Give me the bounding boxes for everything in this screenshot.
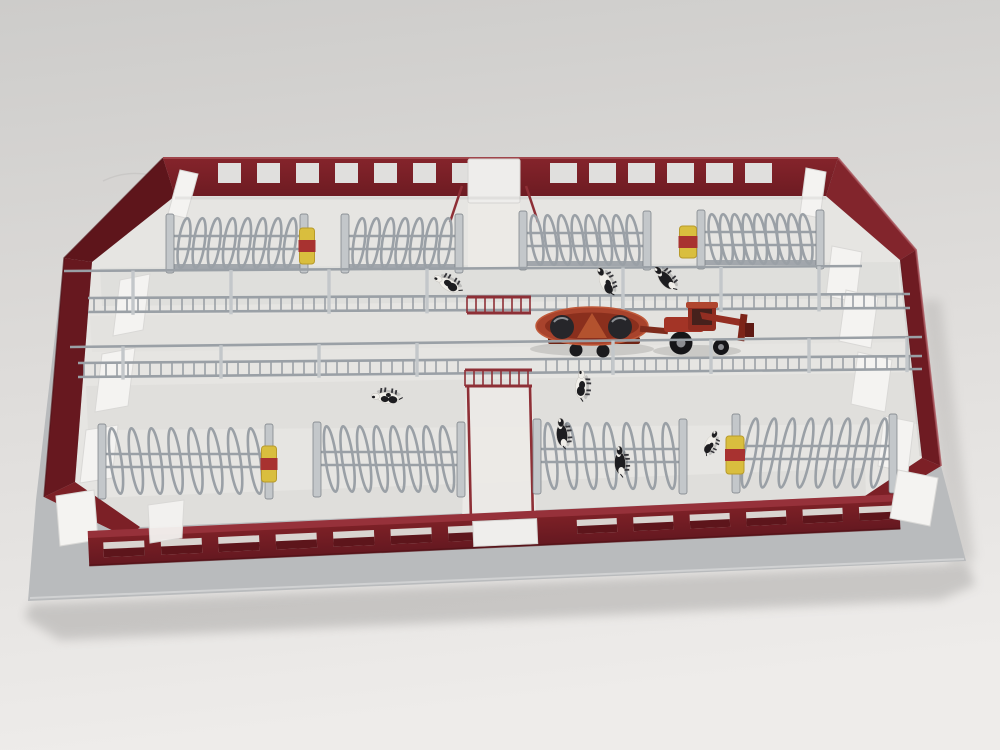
stall-end-post [519, 211, 527, 270]
wall-window [296, 163, 319, 183]
loader-implement [745, 323, 754, 337]
stall-end-post [697, 210, 705, 269]
white-panel [851, 352, 892, 412]
south-crossing-lane [462, 386, 536, 522]
cow-brush [261, 446, 278, 482]
north-doorway [468, 159, 520, 203]
brush-roller [299, 240, 316, 252]
cow-head [616, 446, 622, 455]
white-panel-corner [148, 500, 184, 543]
stall-end-post [679, 419, 687, 494]
wall-window [745, 163, 772, 183]
stall-end-post [166, 214, 174, 273]
wall-window [413, 163, 436, 183]
cow-brush [679, 226, 698, 258]
wall-window [706, 163, 733, 183]
stall-end-post [643, 211, 651, 270]
wall-window [628, 163, 655, 183]
stall-end-post [341, 214, 349, 273]
stall-end-post [98, 424, 106, 499]
mixer-wheel [597, 345, 610, 358]
cow-leg [625, 458, 630, 460]
north-crossing-lane [468, 198, 520, 270]
brush-roller [725, 449, 745, 461]
wall-window [589, 163, 616, 183]
cow-leg [625, 465, 630, 467]
cow-leg [586, 382, 591, 384]
wheel-hub [718, 344, 724, 350]
cow-leg [586, 389, 591, 391]
wall-window [257, 163, 280, 183]
stall-end-post [457, 422, 465, 497]
brush-roller [679, 236, 698, 248]
cow-brush [299, 228, 316, 264]
stall-end-post [313, 422, 321, 497]
white-panel-corner [890, 470, 938, 526]
cab-roof [686, 302, 718, 308]
wall-window [550, 163, 577, 183]
cow-leg [585, 378, 590, 380]
cow-leg [624, 454, 629, 456]
barn-model-scene [0, 0, 1000, 750]
stall-end-post [816, 210, 824, 269]
wall-window [374, 163, 397, 183]
wall-window [335, 163, 358, 183]
wall-window [667, 163, 694, 183]
stall-end-post [455, 214, 463, 273]
cow-brush [725, 436, 745, 474]
brush-roller [261, 458, 278, 470]
stall-end-post [533, 419, 541, 494]
white-panel [839, 290, 878, 348]
south-doorway [473, 519, 538, 547]
mixer-wheel [570, 344, 583, 357]
wall-window [218, 163, 241, 183]
cow-head [558, 418, 565, 427]
photo-of-model-barn [0, 0, 1000, 750]
